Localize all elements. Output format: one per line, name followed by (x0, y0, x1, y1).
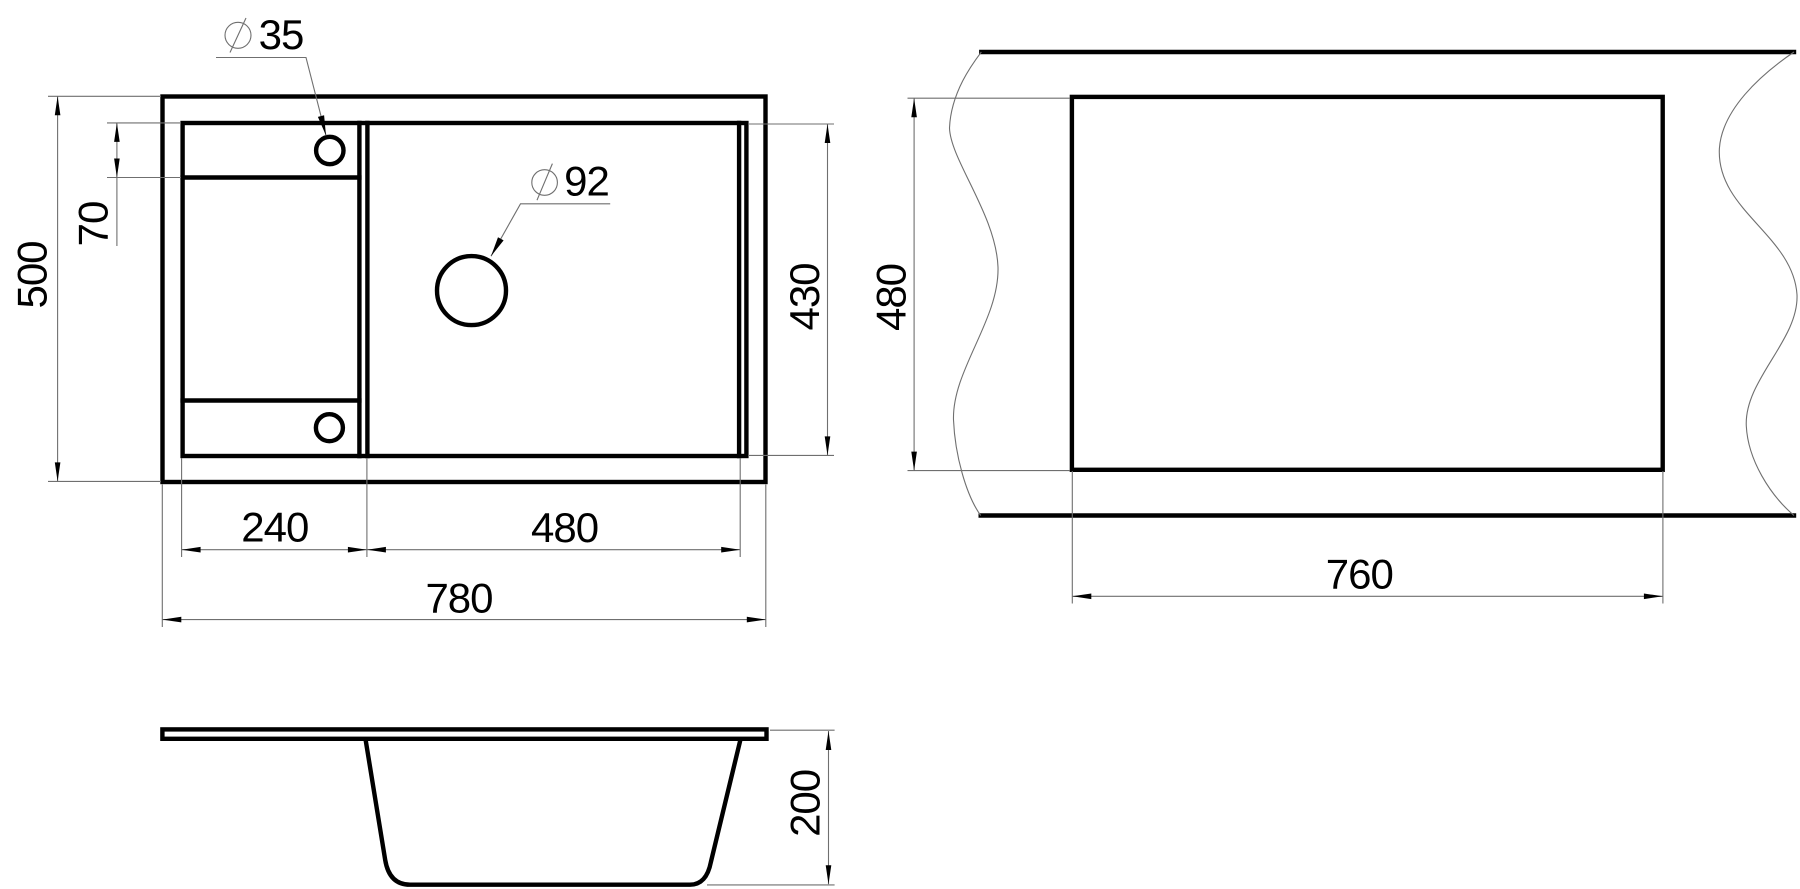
svg-text:780: 780 (425, 575, 492, 622)
svg-text:70: 70 (70, 202, 117, 247)
svg-text:480: 480 (531, 504, 598, 551)
svg-text:240: 240 (241, 504, 308, 551)
svg-text:35: 35 (259, 11, 304, 58)
svg-text:430: 430 (781, 263, 828, 330)
svg-text:480: 480 (867, 264, 914, 331)
svg-text:760: 760 (1326, 551, 1393, 598)
svg-text:92: 92 (564, 158, 609, 205)
svg-text:200: 200 (781, 770, 828, 837)
svg-text:500: 500 (9, 241, 56, 308)
